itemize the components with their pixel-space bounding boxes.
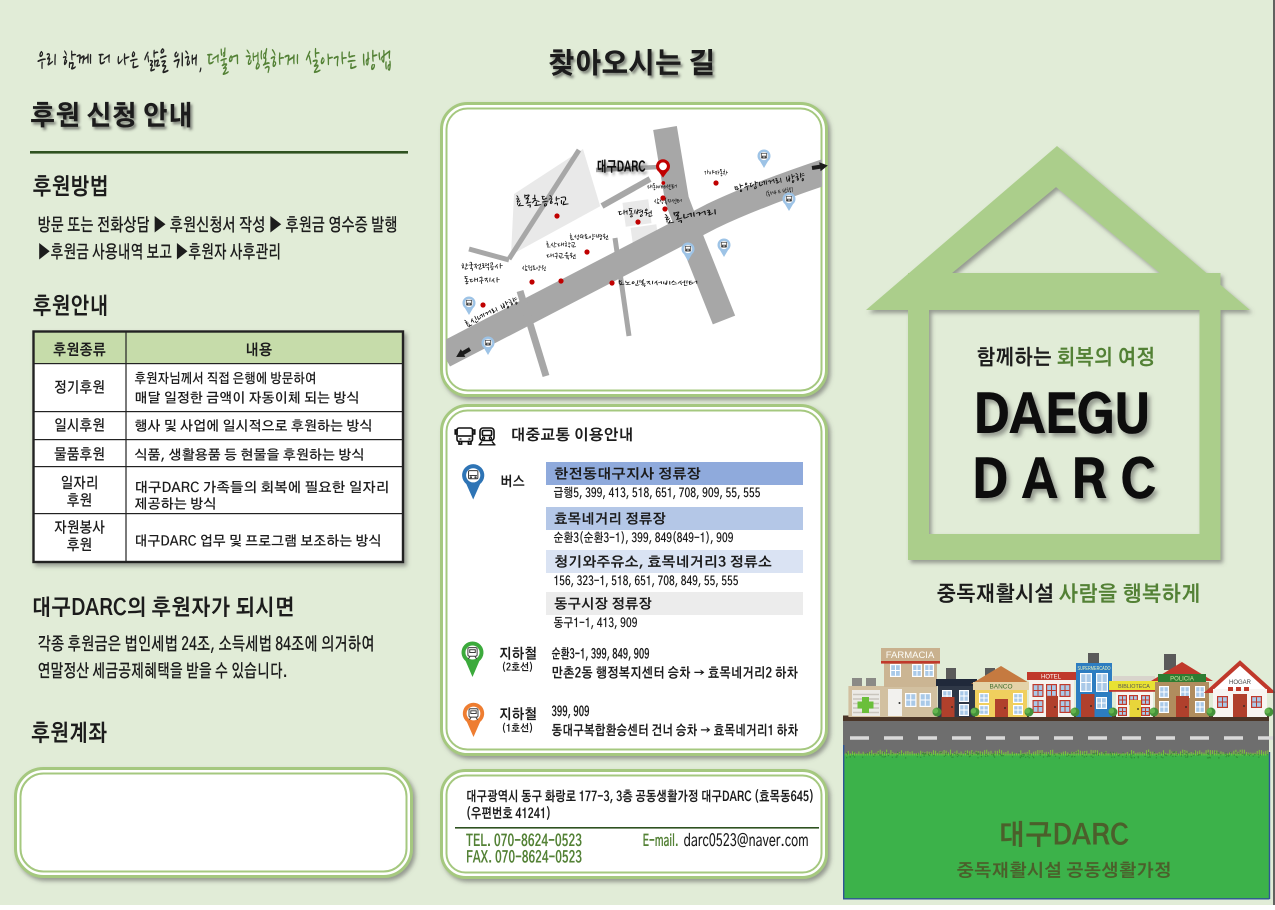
svg-text:FARMACIA: FARMACIA bbox=[886, 650, 935, 661]
svg-text:HOGAR: HOGAR bbox=[1229, 680, 1252, 686]
svg-text:SUPERMERCADO: SUPERMERCADO bbox=[1078, 666, 1111, 672]
svg-text:POLICIA: POLICIA bbox=[1170, 677, 1194, 683]
svg-text:BIBLIOTECA: BIBLIOTECA bbox=[1118, 684, 1150, 690]
svg-text:BANCO: BANCO bbox=[989, 684, 1012, 691]
svg-text:HOTEL: HOTEL bbox=[1041, 675, 1062, 681]
